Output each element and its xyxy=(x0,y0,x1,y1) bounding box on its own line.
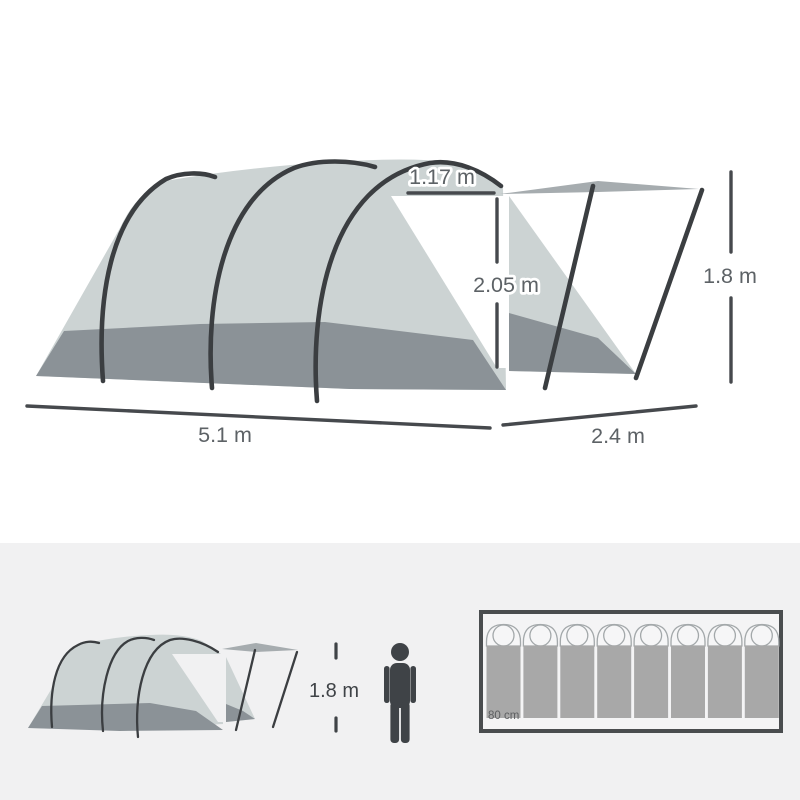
person-arm-left xyxy=(384,666,390,703)
bag-hood xyxy=(671,625,705,647)
bag-hood xyxy=(597,625,631,647)
sleeping-bag-icon xyxy=(487,625,521,719)
bag-body xyxy=(634,646,668,719)
bag-width-label: 80 cm xyxy=(488,710,519,722)
bag-hood xyxy=(745,625,779,647)
bag-hood xyxy=(523,625,557,647)
bag-body xyxy=(487,646,521,719)
main-diagram-section: 1.17 m 2.05 m 1.8 m 5.1 m 2.4 m xyxy=(0,0,800,543)
person-leg-right xyxy=(401,702,410,743)
person-torso xyxy=(390,663,410,708)
sleeping-bag-icon xyxy=(634,625,668,719)
dim-label-porch-height: 1.8 m xyxy=(703,264,757,288)
person-height-reference: 1.8 m xyxy=(309,643,416,743)
scale-panel-graphics: 1.8 m 80 cm xyxy=(0,543,800,800)
dim-line-tent-length xyxy=(27,406,490,428)
scale-panel-section: 1.8 m 80 cm xyxy=(0,543,800,800)
bag-hood xyxy=(560,625,594,647)
dim-label-tent-length: 5.1 m xyxy=(198,423,252,447)
bag-hood xyxy=(708,625,742,647)
bag-body xyxy=(745,646,779,719)
tent-icon xyxy=(36,160,702,402)
sleeping-bag-icon xyxy=(671,625,705,719)
tent-dimension-diagram: 1.17 m 2.05 m 1.8 m 5.1 m 2.4 m xyxy=(0,0,800,543)
canopy-pole-right xyxy=(636,190,702,378)
mini-canopy-pole-right xyxy=(273,652,297,727)
mini-tent-icon xyxy=(28,635,298,737)
canopy-roof xyxy=(500,181,699,194)
sleeping-bag-icon xyxy=(560,625,594,719)
sleeping-bag-icon xyxy=(523,625,557,719)
dim-label-porch-depth: 2.4 m xyxy=(591,424,645,448)
dim-label-door-width: 1.17 m xyxy=(409,165,475,189)
dim-line-porch-depth xyxy=(503,406,696,425)
mini-canopy-roof xyxy=(222,643,298,652)
person-leg-left xyxy=(390,702,399,743)
sleeping-bag-icon xyxy=(708,625,742,719)
person-icon xyxy=(384,643,416,743)
sleeping-bag-icon xyxy=(745,625,779,719)
product-dimension-image: 1.17 m 2.05 m 1.8 m 5.1 m 2.4 m xyxy=(0,0,800,800)
sleeping-bag-floorplan: 80 cm xyxy=(481,612,781,731)
bag-hood xyxy=(487,625,521,647)
person-height-label: 1.8 m xyxy=(309,680,359,702)
bag-hood xyxy=(634,625,668,647)
dim-label-door-height: 2.05 m xyxy=(473,273,539,297)
sleeping-bag-icon xyxy=(597,625,631,719)
bag-body xyxy=(708,646,742,719)
bag-body xyxy=(523,646,557,719)
person-arm-right xyxy=(410,666,416,703)
bag-body xyxy=(560,646,594,719)
bag-body xyxy=(671,646,705,719)
person-head xyxy=(391,643,409,661)
bag-body xyxy=(597,646,631,719)
